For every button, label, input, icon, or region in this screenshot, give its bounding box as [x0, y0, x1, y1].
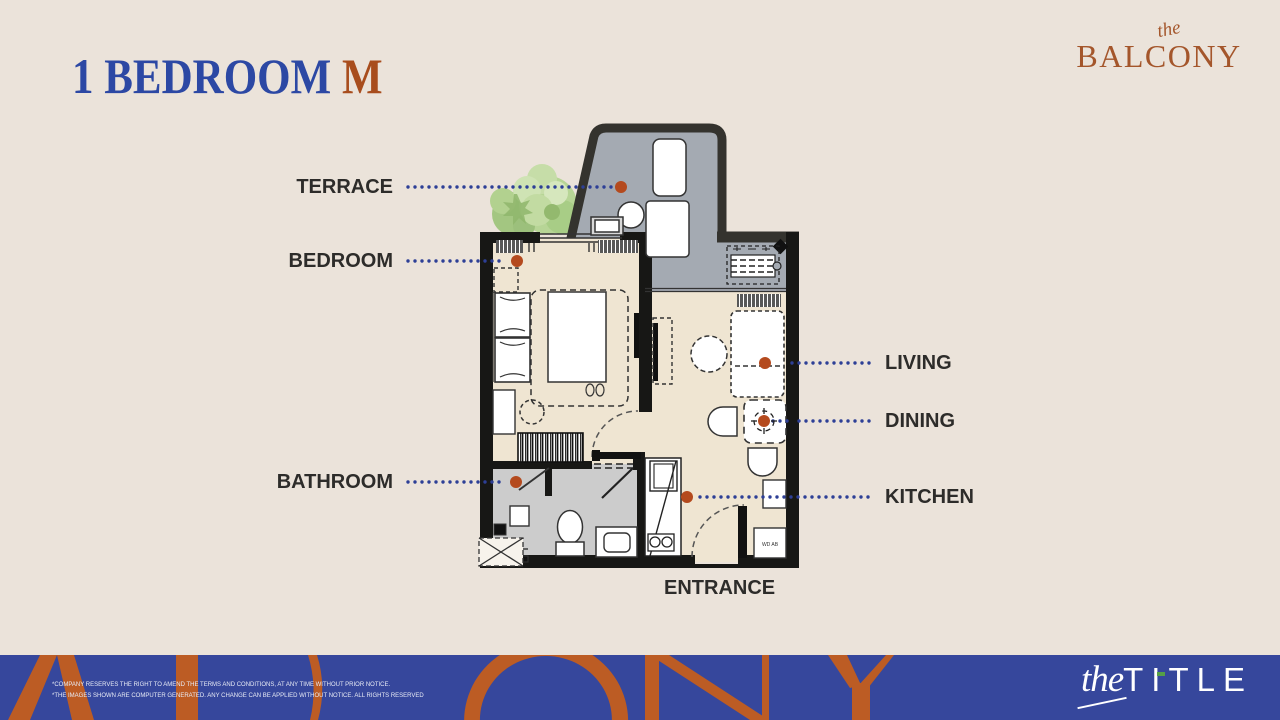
- svg-text:WD AB: WD AB: [762, 542, 779, 548]
